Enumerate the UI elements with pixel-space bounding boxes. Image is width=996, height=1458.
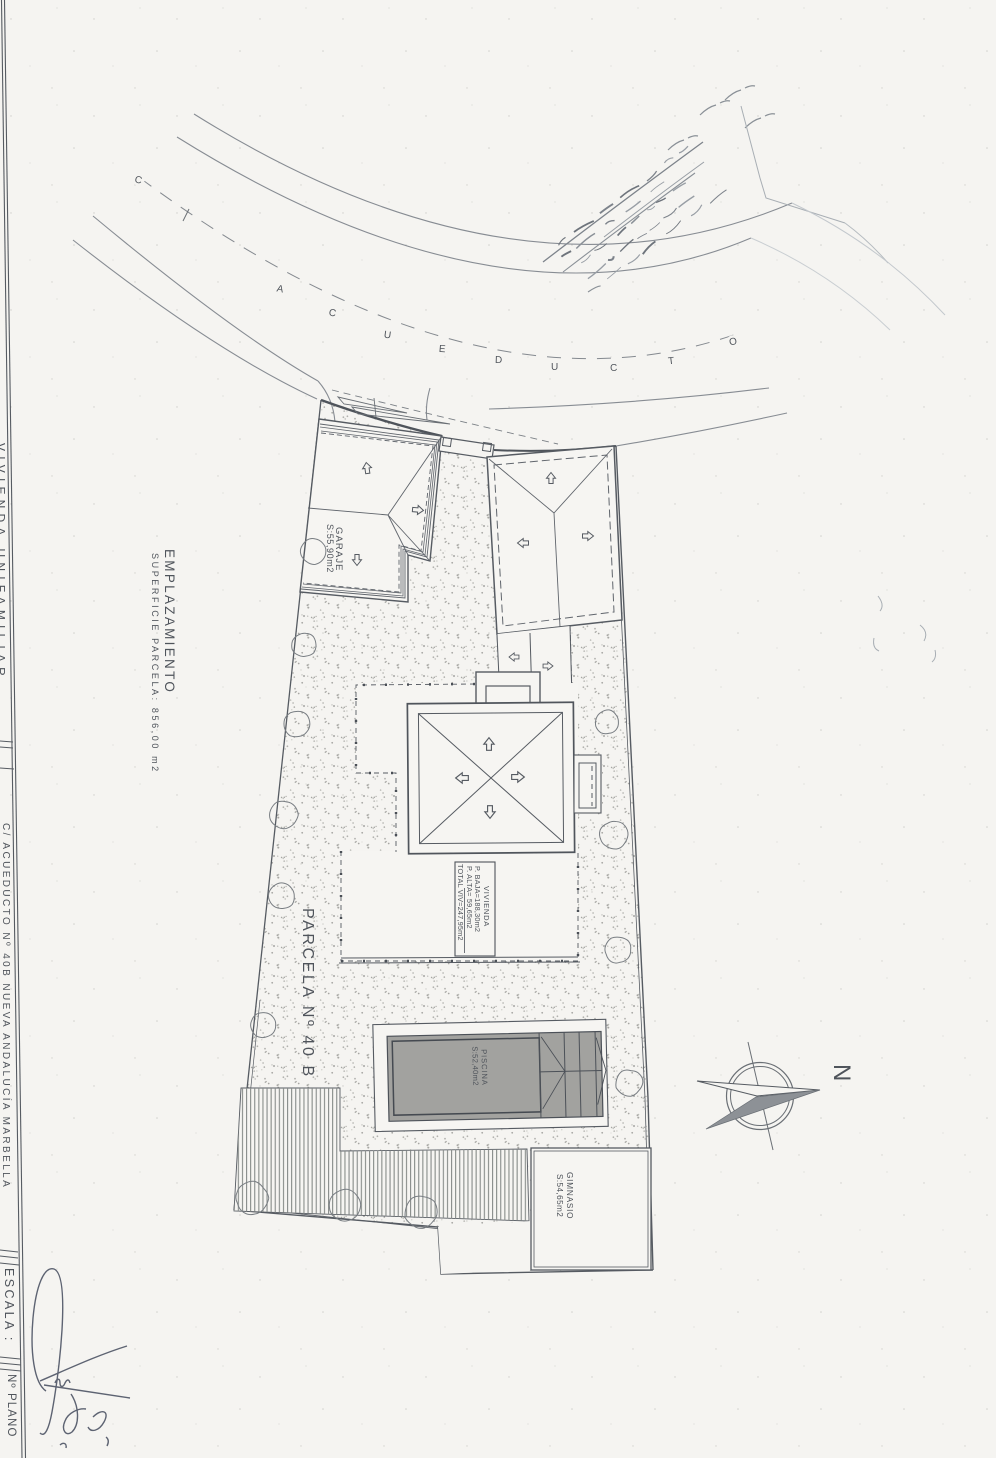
svg-text:E: E (438, 344, 446, 356)
svg-text:U: U (383, 330, 392, 342)
svg-text:S:55,90m2: S:55,90m2 (325, 524, 335, 573)
svg-text:Nº PLANO: Nº PLANO (5, 1374, 17, 1438)
svg-text:TOTAL VIV=247,95m2: TOTAL VIV=247,95m2 (456, 864, 465, 941)
svg-text:VIVIENDA UNIFAMILIAR: VIVIENDA UNIFAMILIAR (0, 443, 8, 681)
svg-text:S:52,40m2: S:52,40m2 (470, 1046, 480, 1086)
svg-text:VIVIENDA: VIVIENDA (482, 886, 491, 927)
svg-text:C/ ACUEDUCTO Nº 40B NUEVA AND: C/ ACUEDUCTO Nº 40B NUEVA ANDALUCÍA MARB… (0, 823, 13, 1189)
svg-text:N: N (828, 1064, 855, 1081)
svg-text:U: U (551, 362, 558, 373)
svg-text:EMPLAZAMIENTO: EMPLAZAMIENTO (162, 549, 177, 694)
svg-text:S:54,65m2: S:54,65m2 (555, 1174, 564, 1217)
svg-text:GIMNASIO: GIMNASIO (565, 1172, 574, 1219)
svg-text:C: C (610, 363, 618, 374)
svg-text:D: D (495, 355, 503, 366)
svg-text:ESCALA :: ESCALA : (2, 1268, 16, 1343)
svg-text:P. ALTA= 59,65m2: P. ALTA= 59,65m2 (465, 866, 474, 929)
svg-text:SUPERFICIE PARCELA: 856,00 m: SUPERFICIE PARCELA: 856,00 m2 (150, 553, 160, 774)
svg-text:PARCELA Nº 40 B: PARCELA Nº 40 B (299, 908, 316, 1079)
